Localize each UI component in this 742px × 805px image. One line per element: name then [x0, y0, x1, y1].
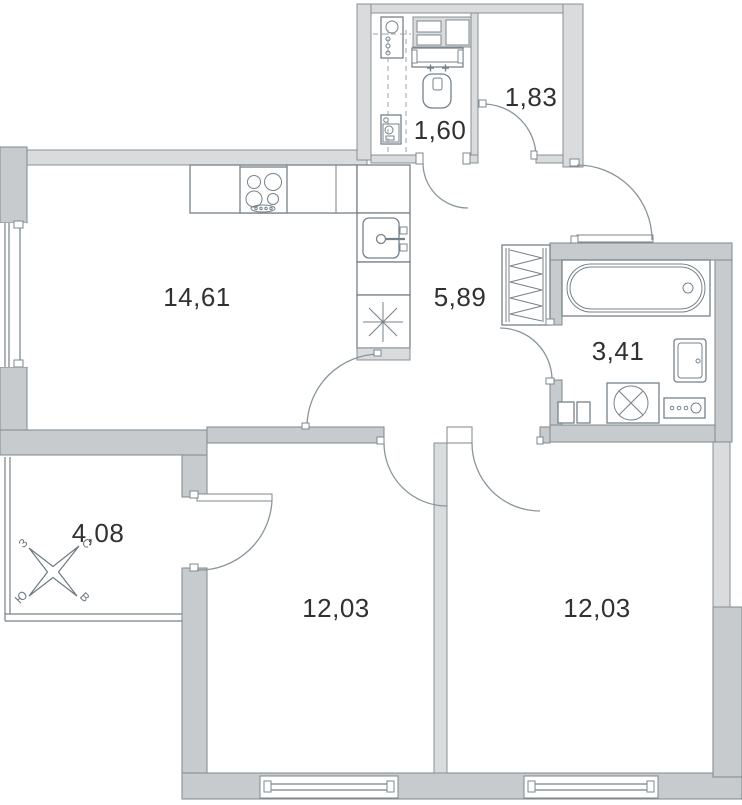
bathroom-sink-icon [674, 339, 706, 382]
compass-east: В [77, 589, 93, 605]
bedroom-left-window [260, 776, 398, 798]
floor-plan: 14,61 5,89 1,60 1,83 3,41 4,08 12,03 12,… [0, 0, 742, 800]
floor-plan-drawing: 14,61 5,89 1,60 1,83 3,41 4,08 12,03 12,… [0, 0, 742, 800]
wc-meter-box [381, 115, 401, 144]
compass-star [29, 546, 79, 596]
balcony-door-leaf [190, 491, 272, 571]
washing-machine-icon [607, 383, 659, 423]
room-label-wc: 1,60 [414, 115, 467, 145]
room-label-bedroom-left: 12,03 [302, 593, 370, 623]
wc-riser-shaft [381, 17, 403, 58]
room-label-bathroom: 3,41 [592, 336, 645, 366]
bathroom-control-panel [664, 398, 705, 418]
wc-shelf [413, 17, 471, 47]
wc-sink-icon [412, 48, 463, 67]
room-label-hallway: 5,89 [434, 282, 487, 312]
compass-south: Ю [12, 588, 30, 606]
toilet-icon [423, 65, 451, 109]
bedroom-right-window [524, 776, 658, 798]
room-label-kitchen: 14,61 [163, 282, 231, 312]
refrigerator-slot-icon [363, 302, 403, 342]
towel-radiator-icon [502, 245, 550, 325]
room-label-entry: 1,83 [505, 82, 558, 112]
room-label-bedroom-right: 12,03 [563, 593, 631, 623]
compass-west: З [16, 536, 31, 551]
bathtub-icon [562, 260, 710, 316]
stove-icon [240, 167, 287, 213]
bathroom-cabinet-icon [558, 402, 590, 423]
compass-rose: С З Ю В [12, 535, 95, 606]
kitchen-window [0, 221, 27, 367]
